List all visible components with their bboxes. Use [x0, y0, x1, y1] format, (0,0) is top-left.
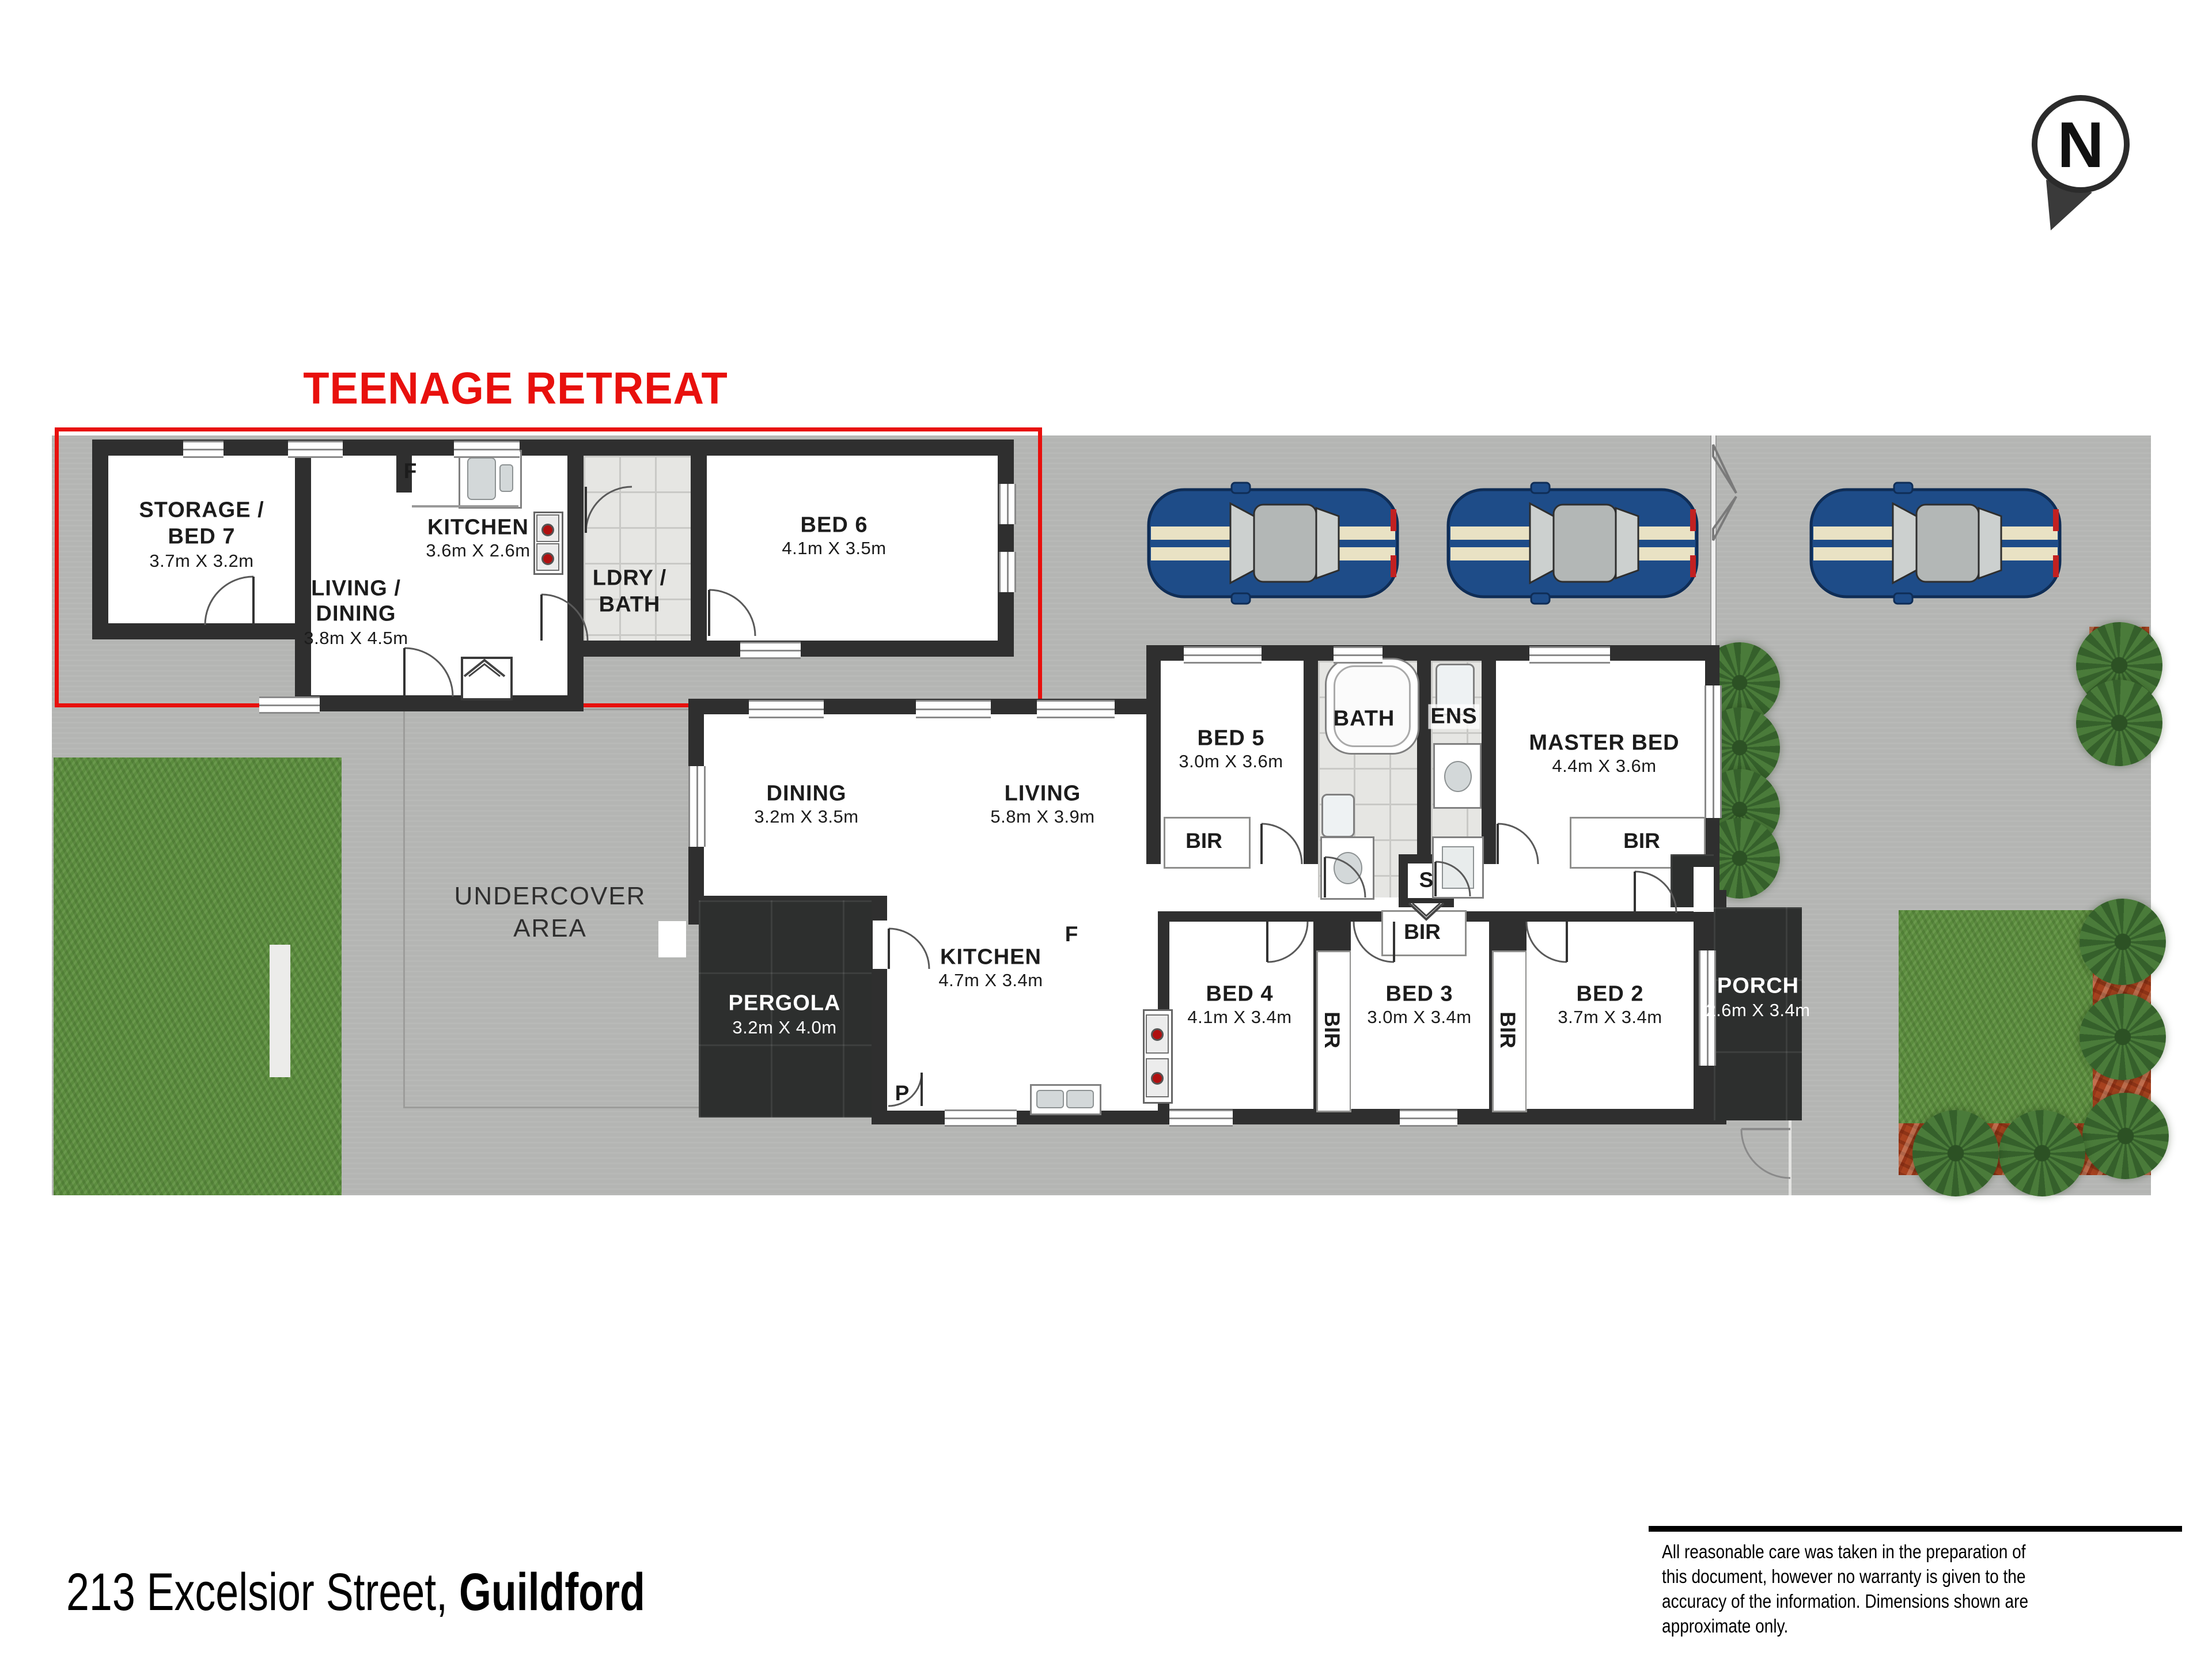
hwc-door-marker [464, 660, 505, 676]
north-indicator: N [2035, 98, 2127, 230]
disclaimer-line: All reasonable care was taken in the pre… [1662, 1539, 2212, 1564]
disclaimer-text: All reasonable care was taken in the pre… [1662, 1539, 2212, 1638]
address-street: 213 Excelsior Street, [66, 1563, 459, 1622]
footer-divider [1649, 1526, 2182, 1532]
car-1 [1149, 483, 1397, 604]
gate-leaf [1713, 445, 1736, 493]
car-3 [1811, 483, 2060, 604]
disclaimer-line: approximate only. [1662, 1613, 2212, 1638]
floorplan-page: TEENAGE RETREAT STORAGE / BED 7 3.7m X 3… [0, 0, 2212, 1659]
address-suburb: Guildford [459, 1563, 645, 1622]
disclaimer-line: accuracy of the information. Dimensions … [1662, 1589, 2212, 1613]
gate-leaf [1713, 497, 1736, 540]
north-label: N [2058, 109, 2104, 181]
disclaimer-line: this document, however no warranty is gi… [1662, 1564, 2212, 1589]
address-line: 213 Excelsior Street, Guildford [66, 1562, 645, 1623]
overlay-graphics: N [0, 0, 2212, 1659]
car-2 [1448, 483, 1697, 604]
